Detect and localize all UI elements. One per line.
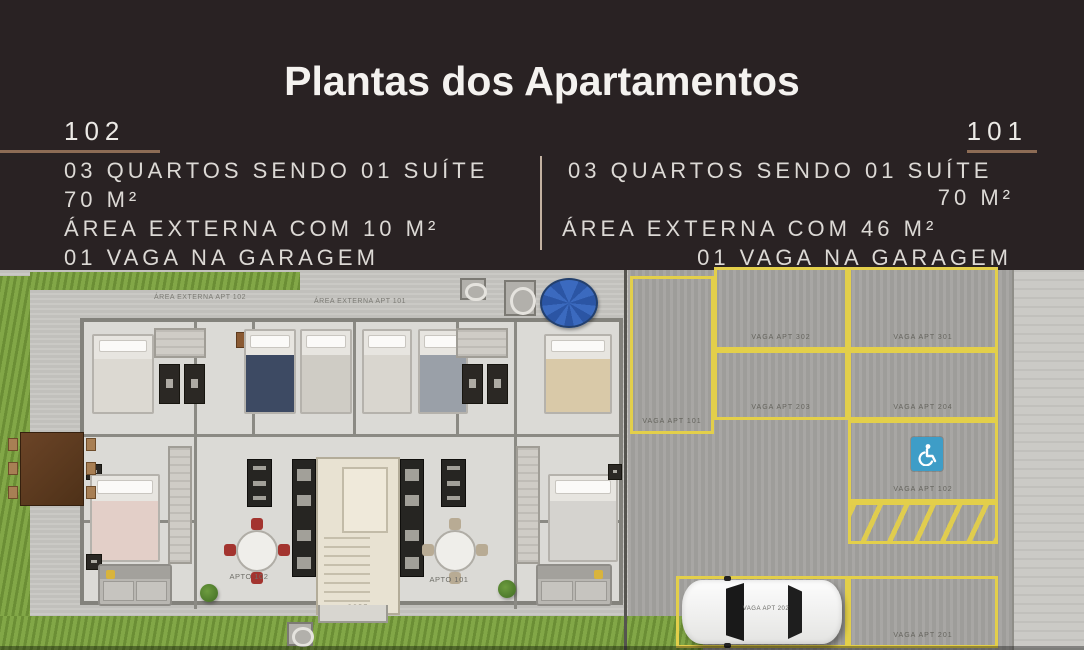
parking-space-label: VAGA APT 301 xyxy=(851,334,995,341)
bed-quarto3-102 xyxy=(300,329,352,414)
parking-space-204: VAGA APT 204 xyxy=(848,350,998,420)
outdoor-chair xyxy=(8,462,18,475)
apto-102-label: APTO 102 xyxy=(214,572,284,581)
bed-suite-101 xyxy=(544,334,612,414)
parking-space-label: VAGA APT 102 xyxy=(851,486,995,493)
ac-condenser-top xyxy=(460,278,486,300)
spec-102-area-externa: ÁREA EXTERNA COM 10 M² xyxy=(64,216,439,242)
outdoor-chair xyxy=(86,438,96,451)
bed-blanket xyxy=(546,359,610,412)
parking-space-301: VAGA APT 301 xyxy=(848,267,998,350)
no-parking-hatch-zone xyxy=(848,502,998,544)
kitchen-counter-101-a xyxy=(441,459,466,507)
closet-101 xyxy=(456,328,508,358)
parking-space-102-handicap: VAGA APT 102 xyxy=(848,420,998,502)
wall-vertical-5 xyxy=(194,434,197,609)
lot-divider-fence xyxy=(624,270,627,650)
wardrobe-101-a xyxy=(462,364,483,404)
parked-car: VAGA APT 202 xyxy=(682,580,842,644)
outdoor-chair xyxy=(8,438,18,451)
header: Plantas dos Apartamentos 102 101 03 QUAR… xyxy=(0,0,1084,270)
car-roof-label: VAGA APT 202 xyxy=(742,606,790,612)
accent-rule-right xyxy=(967,150,1037,153)
apto-101-label: APTO 101 xyxy=(414,575,484,584)
site-plan: ÁREA EXTERNA APT 102 ÁREA EXTERNA APT 10… xyxy=(0,270,1084,650)
bed-blanket xyxy=(246,355,294,412)
spec-101-area-externa: ÁREA EXTERNA COM 46 M² xyxy=(562,216,937,242)
plant-102 xyxy=(200,584,218,602)
bed-blanket xyxy=(550,501,616,560)
plan-bottom-edge xyxy=(0,646,1084,650)
closet-tall-102 xyxy=(168,446,192,564)
chair-red xyxy=(278,544,290,556)
kitchen-counter-102-a xyxy=(247,459,272,507)
spec-102-quartos: 03 QUARTOS SENDO 01 SUÍTE xyxy=(64,158,488,184)
outdoor-chair xyxy=(8,486,18,499)
bed-pillow xyxy=(555,480,610,493)
unit-number-101: 101 xyxy=(967,116,1028,147)
bed-mid-102 xyxy=(90,474,160,562)
dining-table-102 xyxy=(236,530,278,572)
grass-top xyxy=(30,272,300,290)
bed-blanket xyxy=(92,501,158,560)
area-externa-101-label: ÁREA EXTERNA APT 101 xyxy=(300,298,420,305)
accent-rule-left xyxy=(0,150,160,153)
bed-pillow xyxy=(368,335,407,348)
wardrobe-102-b xyxy=(184,364,205,404)
sofa-cushion xyxy=(136,581,167,601)
wheelchair-icon xyxy=(911,437,943,471)
bed-pillow xyxy=(99,340,148,352)
parking-space-label: VAGA APT 302 xyxy=(717,334,845,341)
chair-red xyxy=(224,544,236,556)
car-windshield xyxy=(726,583,744,641)
spec-102-vaga: 01 VAGA NA GARAGEM xyxy=(64,245,379,271)
bed-mid-101 xyxy=(548,474,618,562)
bed-quarto2-102 xyxy=(244,329,296,414)
unit-number-102: 102 xyxy=(64,116,125,147)
chair-red xyxy=(251,518,263,530)
spec-101-area: 70 M² xyxy=(938,185,1014,211)
stairwell: SOBE xyxy=(316,457,400,615)
ac-condenser-bottom xyxy=(287,622,313,646)
wardrobe-102-a xyxy=(159,364,180,404)
sofa-cushion xyxy=(103,581,134,601)
chair-tan xyxy=(422,544,434,556)
outdoor-chair xyxy=(86,462,96,475)
column-divider xyxy=(540,156,542,250)
bed-pillow xyxy=(551,340,605,352)
chair-tan xyxy=(449,518,461,530)
bed-quarto3-101 xyxy=(362,329,412,414)
bed-blanket xyxy=(94,359,152,412)
car-mirror xyxy=(724,576,731,581)
sofa-cushion xyxy=(541,581,573,601)
wall-vertical-4 xyxy=(514,322,517,434)
pillow-accent xyxy=(594,570,603,579)
stair-door xyxy=(342,467,388,533)
parking-space-label: VAGA APT 204 xyxy=(851,404,995,411)
parking-space-label: VAGA APT 101 xyxy=(633,418,711,425)
rooftop-fan-unit xyxy=(504,280,536,316)
wall-horizontal-main xyxy=(84,434,619,437)
parking-space-label: VAGA APT 201 xyxy=(851,632,995,639)
parking-space-203: VAGA APT 203 xyxy=(714,350,848,420)
bed-suite-102 xyxy=(92,334,154,414)
floor-plan-flyer: Plantas dos Apartamentos 102 101 03 QUAR… xyxy=(0,0,1084,650)
plant-101 xyxy=(498,580,516,598)
entry-step xyxy=(318,605,388,623)
closet-tall-101 xyxy=(516,446,540,564)
car-rear-window xyxy=(788,585,802,639)
wall-vertical-center xyxy=(353,322,356,434)
parking-space-302: VAGA APT 302 xyxy=(714,267,848,350)
kitchen-counter-101-b xyxy=(400,459,424,577)
dining-table-101 xyxy=(434,530,476,572)
nightstand-101-a xyxy=(608,464,622,480)
area-externa-102-label: ÁREA EXTERNA APT 102 xyxy=(130,294,270,301)
bed-blanket xyxy=(364,355,410,412)
parking-space-label: VAGA APT 203 xyxy=(717,404,845,411)
chair-tan xyxy=(476,544,488,556)
parking-space-201: VAGA APT 201 xyxy=(848,576,998,648)
bed-blanket xyxy=(420,355,466,412)
parking-space-101: VAGA APT 101 xyxy=(630,276,714,434)
bed-blanket xyxy=(302,355,350,412)
closet-102 xyxy=(154,328,206,358)
bed-pillow xyxy=(306,335,346,348)
spec-101-quartos: 03 QUARTOS SENDO 01 SUÍTE xyxy=(568,158,992,184)
outdoor-wood-table xyxy=(20,432,84,506)
spiral-staircase xyxy=(540,278,598,328)
stair-steps xyxy=(324,537,370,605)
kitchen-counter-102-b xyxy=(292,459,316,577)
page-title: Plantas dos Apartamentos xyxy=(0,58,1084,105)
sofa-cushion xyxy=(575,581,607,601)
bed-pillow xyxy=(97,480,152,493)
pillow-accent xyxy=(106,570,115,579)
wardrobe-101-b xyxy=(487,364,508,404)
spec-102-area: 70 M² xyxy=(64,187,140,213)
bed-pillow xyxy=(250,335,290,348)
sidewalk-strip xyxy=(1012,270,1084,650)
building-outline: SOBE xyxy=(80,318,623,605)
outdoor-chair xyxy=(86,486,96,499)
